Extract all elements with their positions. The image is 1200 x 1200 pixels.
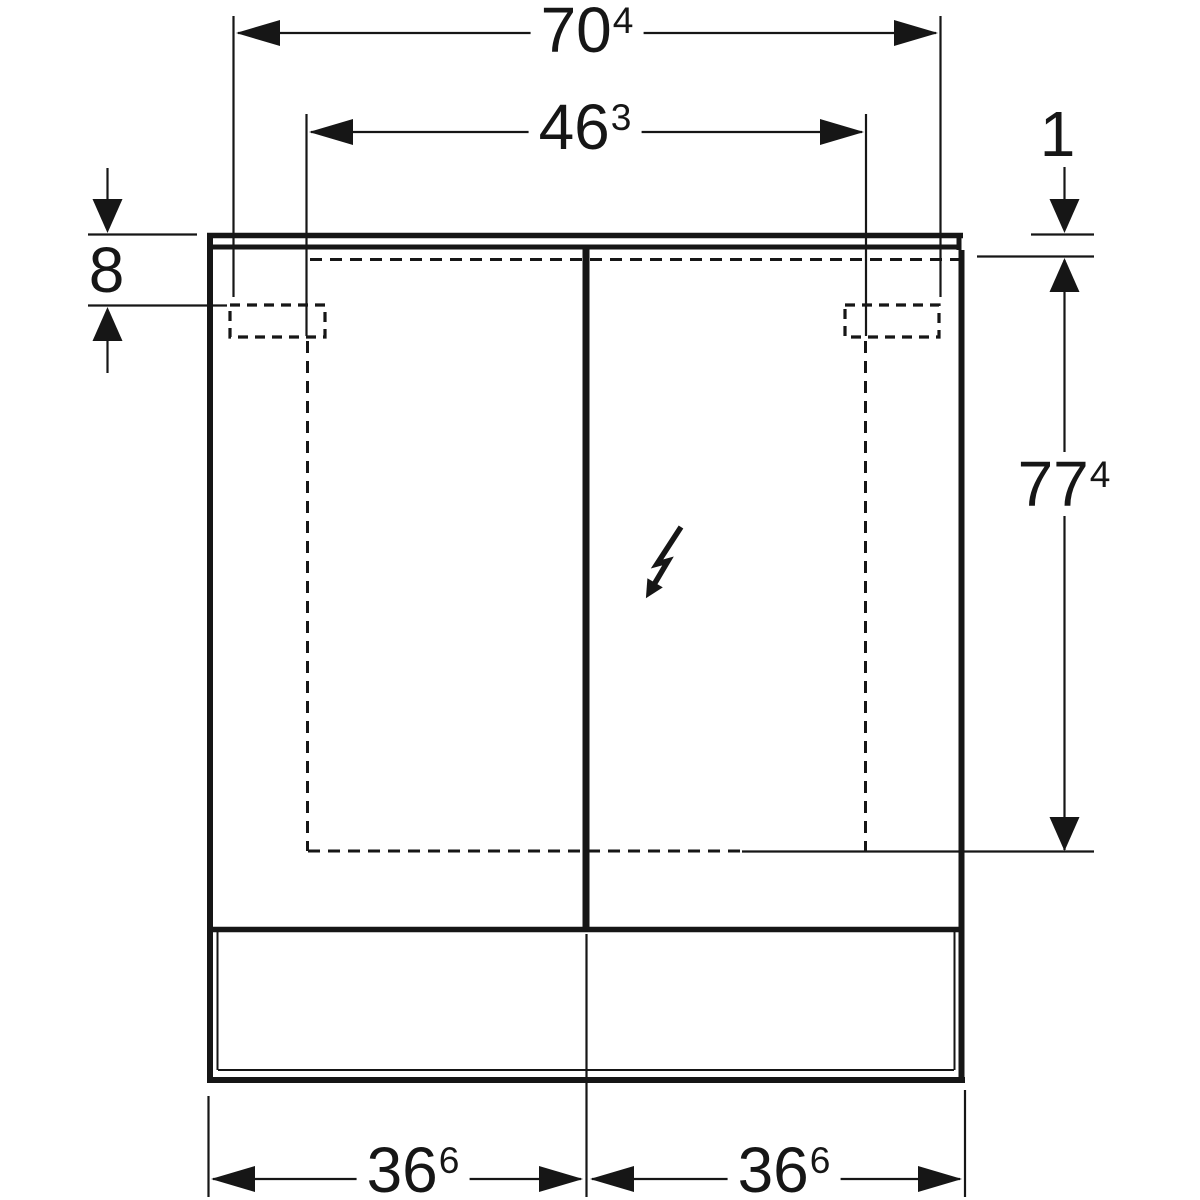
arrowhead-up: [1050, 258, 1080, 292]
arrowhead-left-inner: [539, 1166, 583, 1192]
arrowhead-left: [309, 119, 353, 145]
dim-exponent: 6: [810, 1139, 831, 1181]
dim-exponent: 4: [1090, 453, 1111, 495]
arrowhead-down: [93, 199, 123, 233]
technical-drawing-canvas: 704 463 1 8 774 366 366: [0, 0, 1200, 1200]
arrowhead-right: [820, 119, 864, 145]
dim-exponent: 6: [439, 1139, 460, 1181]
dim-value: 46: [539, 91, 610, 163]
arrowhead-left-outer: [211, 1166, 255, 1192]
dim-door-widths: [209, 934, 966, 1197]
dim-label-cabinet-height: 774: [1008, 452, 1121, 516]
dim-exponent: 3: [611, 96, 632, 138]
dim-cabinet-height: [742, 258, 1094, 852]
dim-value: 70: [541, 0, 612, 66]
arrowhead-left: [236, 20, 280, 46]
lightning-zigzag: [652, 527, 681, 588]
dim-label-overall-width: 704: [531, 0, 644, 62]
arrowhead-right: [894, 20, 938, 46]
arrowhead-down: [1050, 817, 1080, 851]
arrowhead-right-outer: [918, 1166, 962, 1192]
dim-label-panel-height: 1: [1030, 102, 1087, 166]
dim-exponent: 4: [613, 0, 634, 41]
dim-label-right-door-width: 366: [728, 1138, 841, 1200]
dim-value: 1: [1040, 98, 1076, 170]
dim-value: 77: [1018, 448, 1089, 520]
dim-value: 36: [367, 1134, 438, 1200]
cabinet-linework: [0, 0, 1200, 1200]
fixing-bracket-right: [845, 305, 939, 337]
fixing-bracket-left: [230, 305, 325, 337]
dim-value: 8: [89, 234, 125, 306]
dim-label-fixing-centres: 463: [529, 95, 642, 159]
dim-panel-height: [977, 167, 1094, 257]
hidden-body-lines: [308, 260, 960, 852]
arrowhead-down: [1050, 199, 1080, 233]
lightning-arrow-icon: [646, 527, 681, 598]
dim-label-left-door-width: 366: [357, 1138, 470, 1200]
dim-value: 36: [738, 1134, 809, 1200]
arrowhead-right-inner: [590, 1166, 634, 1192]
dim-label-fixing-offset: 8: [79, 238, 136, 302]
